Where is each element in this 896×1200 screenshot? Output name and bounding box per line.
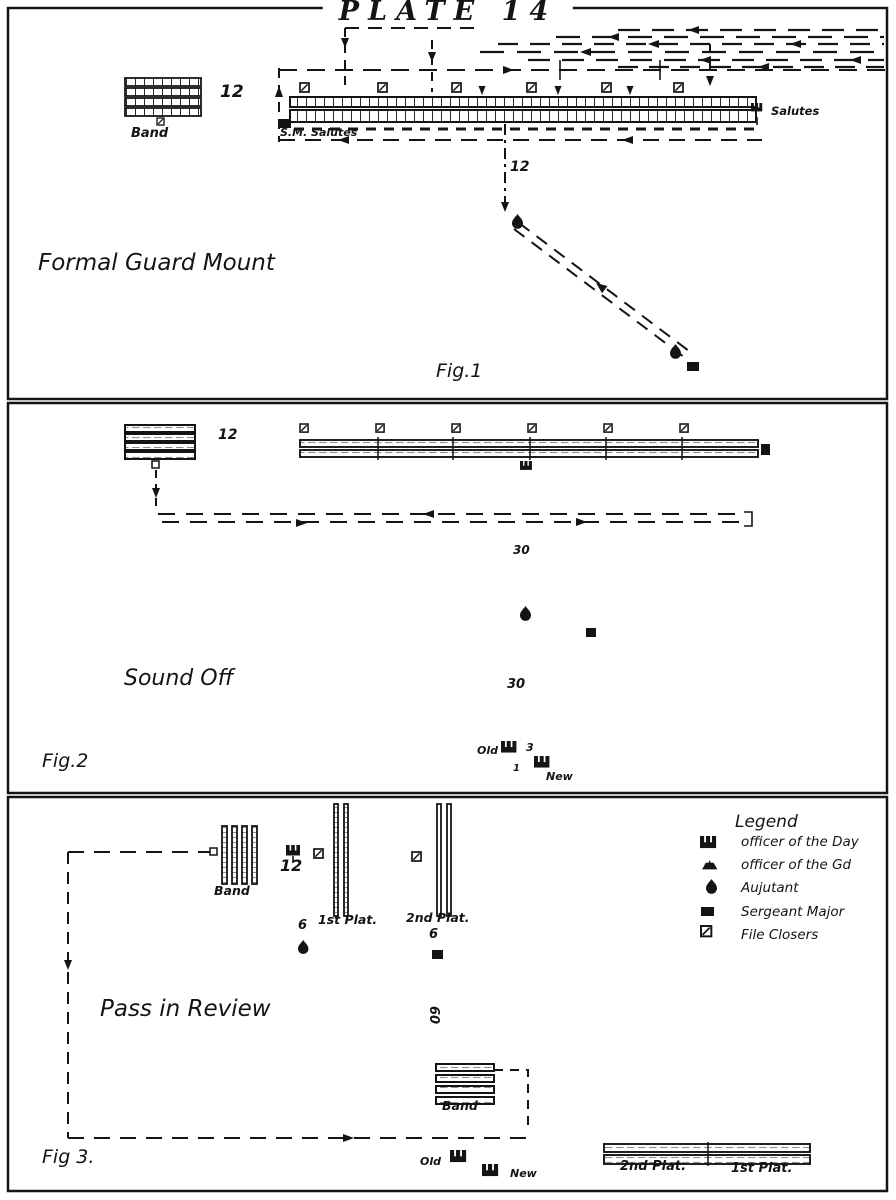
officer-of-the-day-icon <box>700 836 716 848</box>
sergeant-major-icon <box>586 628 596 637</box>
legend-label-file-closers: File Closers <box>741 929 818 943</box>
fig2-distance-lower: 30 <box>507 678 525 691</box>
fig3-band-bottom-label: Band <box>442 1100 478 1113</box>
fig2-band-path <box>152 470 752 527</box>
fig1-sm-salutes-label: S.M. Salutes <box>280 127 357 138</box>
drum-major-icon <box>157 118 164 125</box>
fig1-guard-ranks <box>290 97 756 129</box>
sergeant-major-icon <box>432 950 443 959</box>
legend-label-officer-of-the-guard: officer of the Gd <box>741 859 851 873</box>
sergeant-major-icon <box>687 362 699 371</box>
officer-of-the-day-icon <box>501 741 516 753</box>
file-closer-icon <box>527 83 536 92</box>
fig2-old-label: Old <box>477 745 498 756</box>
officer-of-the-day-icon <box>286 845 300 856</box>
officer-of-the-day-icon <box>751 103 762 111</box>
fig3-plat2-label: 2nd Plat. <box>406 912 470 925</box>
fig3-art <box>64 804 810 1176</box>
fig3-sixty-label: 60 <box>427 1006 440 1024</box>
fig3-six-left: 6 <box>298 919 307 932</box>
fig3-new-label: New <box>510 1168 537 1179</box>
fig3-band-top-label: Band <box>214 885 250 898</box>
fig3-band-top <box>210 826 257 884</box>
file-closer-icon <box>602 83 611 92</box>
fig3-six-right: 6 <box>429 928 438 941</box>
fig1-distance-label: 12 <box>510 160 529 174</box>
fig1-band <box>125 78 201 116</box>
officer-of-the-day-icon <box>482 1164 498 1176</box>
fig2-band-count: 12 <box>218 428 237 442</box>
fig2-band <box>125 425 195 468</box>
file-closer-icon <box>680 424 688 432</box>
fig1-band-count: 12 <box>220 84 244 101</box>
file-closer-icon <box>528 424 536 432</box>
officer-of-the-day-icon <box>534 756 549 768</box>
file-closer-icon <box>314 849 323 858</box>
fig3-platoon-columns <box>334 804 451 916</box>
fig2-title: Sound Off <box>124 668 233 690</box>
officer-of-the-guard-icon <box>702 860 717 869</box>
fig2-step-label: 1 <box>513 764 520 774</box>
file-closer-icon <box>376 424 384 432</box>
fig1-march-stream <box>480 26 884 71</box>
adjutant-icon <box>520 606 531 621</box>
fig3-bottom-plat1-label: 1st Plat. <box>731 1162 792 1175</box>
fig1-adjutant-path <box>501 124 689 357</box>
legend-symbols <box>700 836 717 936</box>
plate-title: PLATE 14 <box>323 0 573 27</box>
file-closer-icon <box>378 83 387 92</box>
fig3-bottom-plat2-label: 2nd Plat. <box>620 1160 686 1173</box>
fig1-title: Formal Guard Mount <box>38 252 275 275</box>
fig1-file-closers <box>300 83 683 95</box>
fig1-figure-label: Fig.1 <box>436 362 482 381</box>
adjutant-icon <box>670 344 681 359</box>
legend-label-adjutant: Aujutant <box>741 882 799 896</box>
plate-canvas: PLATE 14 Band 12 S.M. Salutes Salutes 12… <box>0 0 896 1200</box>
adjutant-icon <box>298 940 308 954</box>
file-closer-icon <box>412 852 421 861</box>
file-closer-icon <box>300 424 308 432</box>
fig3-band-count: 12 <box>280 858 302 874</box>
file-closer-icon <box>452 83 461 92</box>
fig2-art <box>125 424 770 768</box>
legend-label-officer-of-the-day: officer of the Day <box>741 836 859 850</box>
fig3-figure-label: Fig 3. <box>42 1148 94 1167</box>
file-closer-icon <box>300 83 309 92</box>
adjutant-icon <box>512 214 523 229</box>
adjutant-icon <box>706 879 717 894</box>
fig2-figure-label: Fig.2 <box>42 752 88 771</box>
fig2-distance-upper: 30 <box>513 544 530 556</box>
legend-label-sergeant-major: Sergeant Major <box>741 906 844 920</box>
file-closer-icon <box>452 424 460 432</box>
officer-of-the-day-icon <box>450 1150 466 1162</box>
fig2-guard-line <box>300 437 758 460</box>
fig3-title: Pass in Review <box>100 998 271 1021</box>
fig2-new-label: New <box>546 771 573 782</box>
fig2-gap-label: 3 <box>526 742 534 753</box>
fig1-art <box>125 26 886 371</box>
sergeant-major-icon <box>701 907 714 916</box>
file-closers-icon <box>701 926 711 936</box>
fig3-plat1-label: 1st Plat. <box>318 914 377 927</box>
fig1-band-label: Band <box>131 127 168 140</box>
fig3-old-label: Old <box>420 1156 441 1167</box>
file-closer-icon <box>674 83 683 92</box>
fig1-salutes-label: Salutes <box>771 106 819 118</box>
file-closer-icon <box>604 424 612 432</box>
sergeant-major-icon <box>761 444 770 455</box>
legend-title: Legend <box>735 814 798 831</box>
officer-of-the-day-icon <box>520 461 532 470</box>
fig2-file-closers <box>300 424 688 432</box>
